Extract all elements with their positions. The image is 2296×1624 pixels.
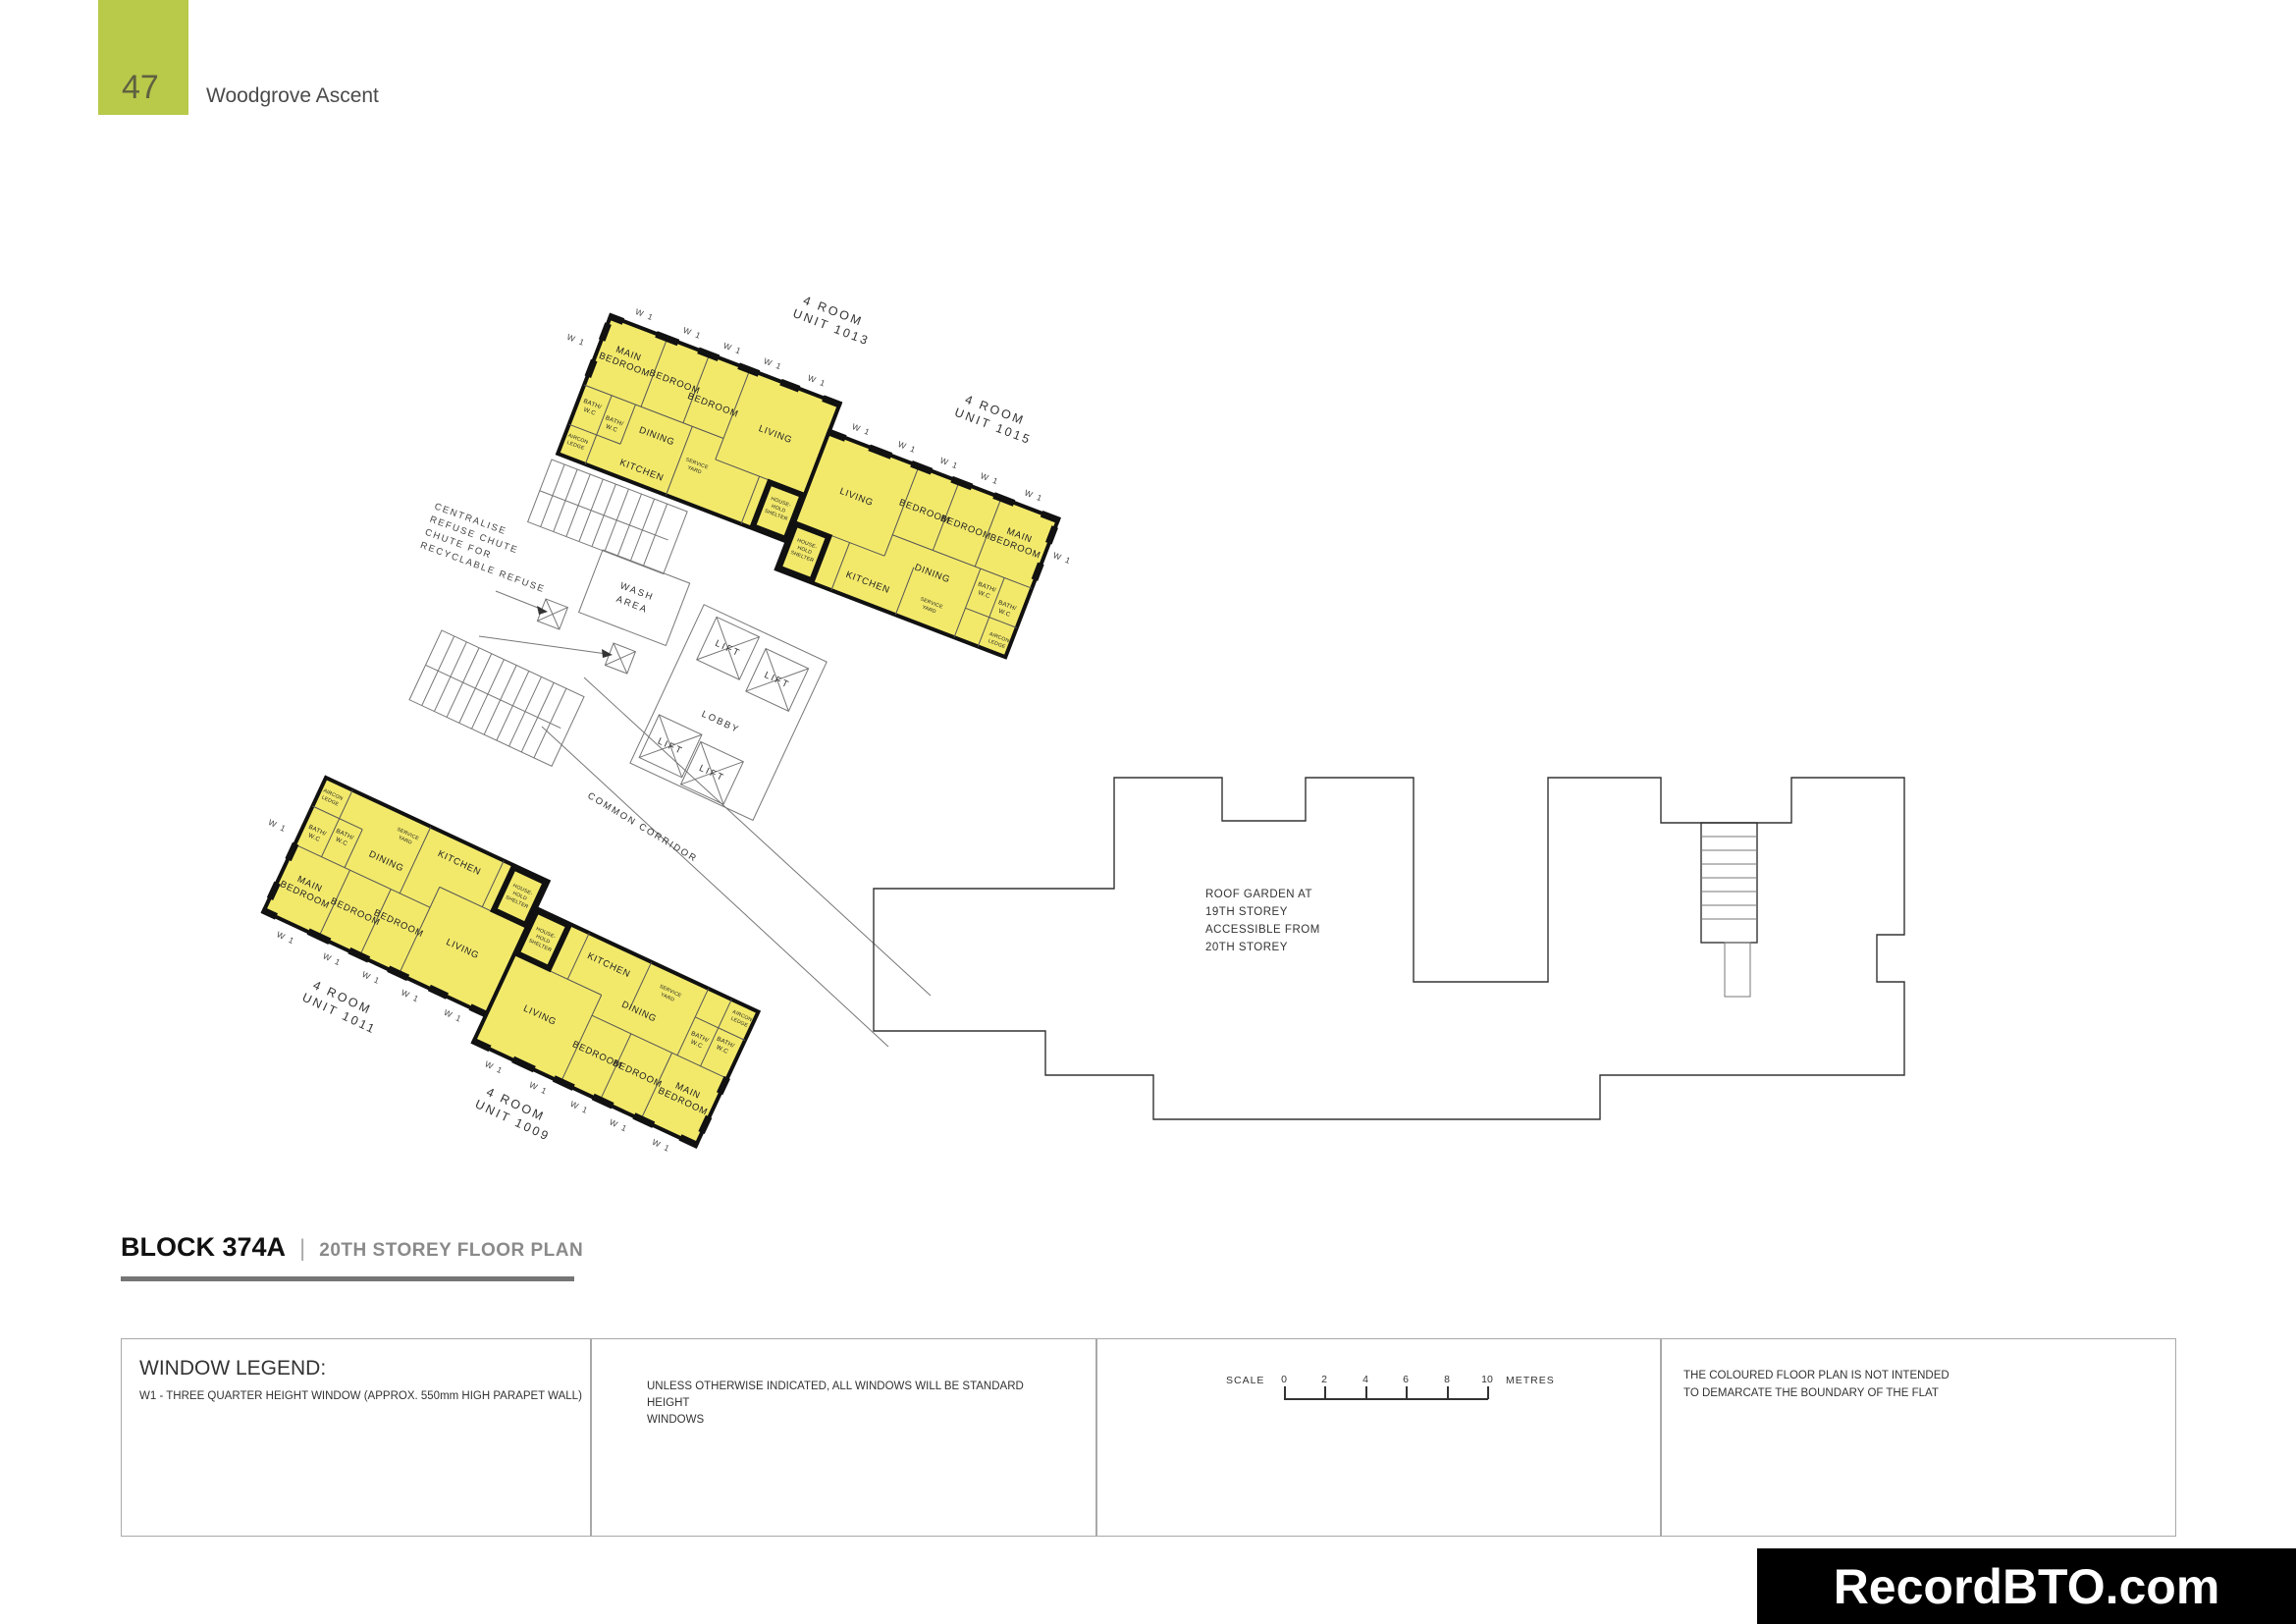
room-label: LEDGE <box>988 638 1007 650</box>
room-label: MAIN <box>1005 526 1034 546</box>
window-label: W 1 <box>568 1099 590 1115</box>
window-label: W 1 <box>896 439 918 455</box>
plan-heading: BLOCK 374A|20TH STOREY FLOOR PLAN <box>121 1232 583 1263</box>
roof-garden: ROOF GARDEN AT 19TH STOREY ACCESSIBLE FR… <box>874 778 1904 1119</box>
room-label: KITCHEN <box>436 848 483 878</box>
window-wall-block <box>950 476 973 490</box>
scale-tick-number: 8 <box>1437 1374 1457 1385</box>
unit-1015-outline <box>776 432 1058 658</box>
window-wall-block <box>717 1076 730 1095</box>
room-label: DINING <box>637 425 675 449</box>
room-label: MAIN <box>295 874 324 894</box>
lift-cross <box>639 715 702 778</box>
room-label: KITCHEN <box>618 458 666 484</box>
lift-box <box>746 649 809 712</box>
room-label: BEDROOM <box>372 907 425 940</box>
room-label: HOLD <box>796 545 812 556</box>
scale-tick <box>1406 1386 1408 1399</box>
scale-tick <box>1324 1386 1326 1399</box>
room-label: AIRCON <box>567 433 589 446</box>
unit-label-1013: UNIT 1013 <box>791 306 872 349</box>
window-wall-block <box>585 359 598 378</box>
room-label: BEDROOM <box>329 895 382 928</box>
room-label: SHELTER <box>764 509 788 523</box>
window-label: W 1 <box>267 817 289 834</box>
lift-box <box>639 715 702 778</box>
page-number-box: 47 <box>98 0 188 115</box>
lift-cross <box>697 617 760 679</box>
room-label: HOUSE- <box>796 537 818 550</box>
chute-outline <box>537 599 567 629</box>
window-wall-block <box>387 965 409 981</box>
wash-area: WASH AREA <box>579 550 690 646</box>
room-label: LEDGE <box>729 1016 749 1029</box>
room-label: HOUSE- <box>511 883 533 897</box>
window-label: W 1 <box>851 421 873 437</box>
window-label: W 1 <box>938 455 960 470</box>
room-label: W.C <box>716 1044 730 1056</box>
household-shelter-wall <box>494 867 546 925</box>
household-shelter-wall <box>778 524 828 581</box>
scale-bar <box>1284 1398 1488 1400</box>
scale-cell: SCALE 0 2 4 6 8 10 METRES <box>1095 1339 1660 1536</box>
window-wall-block <box>307 928 332 944</box>
window-wall-block <box>599 322 612 341</box>
unit-label-1009: UNIT 1009 <box>473 1097 553 1144</box>
room-label: W.C <box>307 832 322 843</box>
unit-label-1013: 4 ROOM <box>801 294 865 329</box>
window-wall-block <box>608 312 624 324</box>
window-label: W 1 <box>400 988 421 1004</box>
room-label: SERVICE <box>659 984 683 1000</box>
unit-1011-partitions <box>264 778 549 1015</box>
window-legend-note: W1 - THREE QUARTER HEIGHT WINDOW (APPROX… <box>139 1390 582 1402</box>
disclaimer-line2: TO DEMARCATE THE BOUNDARY OF THE FLAT <box>1683 1387 1939 1399</box>
window-wall-block <box>470 1037 491 1052</box>
room-label: BEDROOM <box>611 1057 664 1090</box>
window-wall-block <box>469 1003 490 1018</box>
scale-tick-number: 4 <box>1356 1374 1375 1385</box>
room-label: LIVING <box>445 937 481 961</box>
room-label: BATH/ <box>997 599 1017 612</box>
window-wall-block <box>511 1056 536 1072</box>
room-label: YARD <box>398 835 413 846</box>
wash-area-label: AREA <box>614 594 650 616</box>
lift-cross <box>681 741 744 804</box>
window-label: W 1 <box>321 950 343 967</box>
staircase-lower <box>409 630 584 766</box>
wash-area-outline <box>579 550 690 646</box>
common-corridor-label: COMMON CORRIDOR <box>585 790 699 865</box>
room-label: LIVING <box>838 486 876 509</box>
window-label: W 1 <box>1023 487 1044 503</box>
room-label: LEDGE <box>566 440 586 452</box>
lobby-label: LOBBY <box>700 709 741 736</box>
scale-unit: METRES <box>1506 1375 1555 1386</box>
window-wall-block <box>822 395 842 408</box>
stair-landing <box>1725 943 1750 997</box>
room-label: BATH/ <box>690 1030 710 1044</box>
window-wall-block <box>632 1112 655 1128</box>
stair-treads <box>1701 837 1757 919</box>
room-label: SERVICE <box>685 457 710 470</box>
window-label: W 1 <box>651 1137 672 1154</box>
roof-garden-line: ROOF GARDEN AT <box>1205 889 1312 900</box>
lift-2: LIFT <box>746 649 809 712</box>
room-label: BATH/ <box>605 414 624 427</box>
disclaimer-cell: THE COLOURED FLOOR PLAN IS NOT INTENDED … <box>1660 1339 2175 1536</box>
windows-note-line2: WINDOWS <box>647 1414 704 1426</box>
window-wall-block <box>992 492 1015 506</box>
leader-lines <box>479 591 607 654</box>
annotation-line: CHUTE FOR <box>423 527 493 562</box>
windows-note: UNLESS OTHERWISE INDICATED, ALL WINDOWS … <box>647 1379 1069 1429</box>
unit-1011-outline <box>264 778 549 1015</box>
room-label: W.C <box>605 423 618 434</box>
scale-tick <box>1284 1386 1286 1399</box>
room-label: HOUSE- <box>535 926 557 941</box>
room-label: BEDROOM <box>656 1086 709 1118</box>
page-title: Woodgrove Ascent <box>206 84 379 108</box>
window-wall-block <box>267 882 281 900</box>
roof-garden-note: ROOF GARDEN AT 19TH STOREY ACCESSIBLE FR… <box>1205 889 1320 953</box>
recyclable-chute-box <box>605 643 635 674</box>
window-label: W 1 <box>681 325 703 341</box>
unit-label-1015: 4 ROOM <box>963 393 1027 428</box>
watermark-banner: RecordBTO.com <box>1757 1548 2296 1624</box>
window-label: W 1 <box>806 373 828 389</box>
window-wall-block <box>285 842 298 861</box>
room-label: SERVICE <box>396 827 420 842</box>
window-label: W 1 <box>722 341 744 356</box>
window-wall-block <box>697 348 720 361</box>
room-label: LIVING <box>521 1003 558 1028</box>
room-label: W.C <box>977 589 990 600</box>
unit-label-1015: UNIT 1015 <box>953 406 1034 448</box>
window-wall-block <box>1045 525 1058 544</box>
room-label: DINING <box>367 849 405 875</box>
scale-label: SCALE <box>1226 1375 1264 1386</box>
room-label: BEDROOM <box>570 1039 623 1071</box>
room-label: MAIN <box>673 1081 702 1102</box>
room-label: BATH/ <box>582 398 602 410</box>
room-label: BEDROOM <box>897 497 951 526</box>
room-label: HOLD <box>771 504 786 514</box>
unit-1015-partitions <box>776 432 1058 658</box>
lift-label: LIFT <box>763 670 792 691</box>
chute-cross <box>605 643 635 674</box>
window-wall-block <box>826 428 846 442</box>
annotation-line: RECYCLABLE REFUSE <box>419 540 547 595</box>
window-label: W 1 <box>443 1007 464 1024</box>
lift-label: LIFT <box>714 638 743 660</box>
unit-label-1011: UNIT 1011 <box>300 991 379 1037</box>
unit-1015: LIVING BEDROOM BEDROOM MAIN BEDROOM DINI… <box>774 413 1091 667</box>
stair-treads <box>409 630 577 763</box>
window-wall-block <box>1041 511 1061 524</box>
stair-outline <box>409 630 584 766</box>
room-label: SERVICE <box>920 596 944 610</box>
roof-garden-line: 19TH STOREY <box>1205 906 1288 918</box>
window-label: W 1 <box>979 470 1000 486</box>
stair-treads <box>528 460 680 571</box>
unit-1013-outline <box>558 316 839 542</box>
brochure-page: 47 Woodgrove Ascent MAIN BEDROOM BEDROOM <box>0 0 2296 1624</box>
room-label: YARD <box>660 992 675 1003</box>
room-label: W.C <box>583 406 597 417</box>
heading-underline <box>121 1276 574 1281</box>
window-wall-block <box>428 985 449 1000</box>
lift-label: LIFT <box>656 735 685 757</box>
window-wall-block <box>261 906 278 919</box>
room-label: BEDROOM <box>686 391 740 420</box>
chute-outline <box>605 643 635 674</box>
scale-tick <box>1447 1386 1449 1399</box>
room-label: SHELTER <box>528 938 553 953</box>
annotation-line: REFUSE CHUTE <box>428 514 520 557</box>
lift-4: LIFT <box>681 741 744 804</box>
lift-box <box>697 617 760 679</box>
unit-label-1009: 4 ROOM <box>484 1085 547 1124</box>
unit-1009-outline <box>474 908 759 1146</box>
room-label: LEDGE <box>321 794 341 807</box>
room-label: HOUSE- <box>770 496 791 509</box>
lift-1: LIFT <box>697 617 760 679</box>
room-label: DINING <box>619 1000 658 1025</box>
scale-tick-number: 0 <box>1274 1374 1294 1385</box>
room-label: W.C <box>335 836 349 847</box>
window-label: W 1 <box>483 1058 505 1075</box>
window-label: W 1 <box>763 355 784 371</box>
lift-cross <box>746 649 809 712</box>
roof-garden-stair <box>1701 823 1757 997</box>
window-wall-block <box>1032 563 1044 581</box>
window-label: W 1 <box>275 929 296 946</box>
wash-area-label: WASH <box>618 580 656 603</box>
window-wall-block <box>868 445 892 460</box>
window-label: W 1 <box>1051 550 1073 566</box>
unit-1009-partitions <box>474 908 759 1146</box>
stair-outline <box>1701 823 1757 943</box>
lift-label: LIFT <box>697 763 726 785</box>
room-label: BATH/ <box>977 581 996 594</box>
roof-garden-line: ACCESSIBLE FROM <box>1205 924 1320 936</box>
disclaimer-line1: THE COLOURED FLOOR PLAN IS NOT INTENDED <box>1683 1370 1949 1381</box>
chute-cross <box>537 599 567 629</box>
refuse-chute-annotation: CENTRALISE REFUSE CHUTE CHUTE FOR RECYCL… <box>419 501 613 658</box>
unit-1013: MAIN BEDROOM BEDROOM BEDROOM LIVING DINI… <box>527 287 848 542</box>
room-label: BEDROOM <box>648 367 702 397</box>
room-label: AIRCON <box>988 631 1010 644</box>
window-legend-cell: WINDOW LEGEND: W1 - THREE QUARTER HEIGHT… <box>122 1339 590 1536</box>
windows-note-cell: UNLESS OTHERWISE INDICATED, ALL WINDOWS … <box>590 1339 1095 1536</box>
room-label: BEDROOM <box>988 532 1042 562</box>
watermark-text: RecordBTO.com <box>1834 1558 2220 1615</box>
scale-tick <box>1365 1386 1367 1399</box>
room-label: YARD <box>921 605 936 616</box>
lift-lobby: LIFT LIFT LOBBY LIFT LIFT <box>630 605 827 821</box>
scale-tick <box>1487 1386 1489 1399</box>
roof-garden-outline <box>874 778 1904 1119</box>
room-label: HOLD <box>511 891 527 902</box>
staircase-upper <box>528 460 688 574</box>
room-label: BEDROOM <box>598 351 652 380</box>
window-wall-block <box>910 460 933 474</box>
central-core: WASH AREA L <box>409 460 931 1047</box>
room-label: SHELTER <box>505 894 529 910</box>
window-wall-block <box>655 331 679 346</box>
leader-arrow <box>602 649 613 658</box>
window-wall-block <box>553 1075 575 1091</box>
household-shelter-wall <box>517 911 569 969</box>
annotation-line: CENTRALISE <box>433 501 508 537</box>
disclaimer: THE COLOURED FLOOR PLAN IS NOT INTENDED … <box>1683 1367 1949 1402</box>
window-wall-block <box>592 1094 614 1110</box>
storey-plan-title: 20TH STOREY FLOOR PLAN <box>319 1240 583 1261</box>
room-label: BEDROOM <box>938 514 992 543</box>
heading-separator: | <box>299 1235 305 1262</box>
room-label: YARD <box>686 465 702 476</box>
window-wall-block <box>679 1134 700 1149</box>
page-number: 47 <box>122 69 159 107</box>
lift-box <box>681 741 744 804</box>
household-shelter-wall <box>753 482 803 539</box>
scale-tick-number: 10 <box>1477 1374 1497 1385</box>
window-label: W 1 <box>634 306 656 322</box>
common-corridor-lines <box>542 677 931 1047</box>
unit-label-1011: 4 ROOM <box>311 978 374 1017</box>
refuse-chute-box <box>537 599 567 629</box>
window-label: W 1 <box>360 969 382 986</box>
scale-tick-number: 2 <box>1314 1374 1334 1385</box>
room-label: BEDROOM <box>278 879 331 911</box>
room-label: DINING <box>913 562 951 585</box>
room-label: KITCHEN <box>844 569 891 596</box>
unit-1009: LIVING BEDROOM BEDROOM MAIN BEDROOM DINI… <box>463 907 761 1164</box>
upper-wing: MAIN BEDROOM BEDROOM BEDROOM LIVING DINI… <box>516 219 1127 667</box>
unit-1011: MAIN BEDROOM BEDROOM BEDROOM LIVING DINI… <box>226 764 551 1034</box>
window-wall-block <box>347 947 370 963</box>
lobby-outline <box>630 605 827 821</box>
lift-3: LIFT <box>639 715 702 778</box>
block-title: BLOCK 374A <box>121 1232 286 1262</box>
window-wall-block <box>698 1115 712 1134</box>
window-wall-block <box>779 379 800 393</box>
room-label: W.C <box>997 608 1011 619</box>
room-label: LIVING <box>757 423 794 446</box>
room-label: W.C <box>689 1039 704 1051</box>
room-label: SHELTER <box>789 550 814 565</box>
roof-garden-line: 20TH STOREY <box>1205 942 1288 953</box>
room-label: AIRCON <box>731 1009 753 1023</box>
window-legend-title: WINDOW LEGEND: <box>139 1357 326 1380</box>
room-label: BATH/ <box>335 828 354 841</box>
scale-tick-number: 6 <box>1396 1374 1415 1385</box>
unit-1013-partitions <box>558 316 839 542</box>
room-label: BATH/ <box>716 1036 735 1050</box>
window-wall-block <box>737 362 760 376</box>
window-label: W 1 <box>608 1117 629 1134</box>
room-label: KITCHEN <box>585 950 632 980</box>
legend-table: WINDOW LEGEND: W1 - THREE QUARTER HEIGHT… <box>121 1338 2176 1537</box>
room-label: BATH/ <box>307 824 327 838</box>
room-label: AIRCON <box>322 787 344 801</box>
window-label: W 1 <box>565 332 587 348</box>
stair-outline <box>528 460 688 574</box>
room-label: MAIN <box>614 345 643 364</box>
leader-arrow <box>537 606 548 615</box>
windows-note-line1: UNLESS OTHERWISE INDICATED, ALL WINDOWS … <box>647 1380 1024 1409</box>
lower-wing: MAIN BEDROOM BEDROOM BEDROOM LIVING DINI… <box>195 764 774 1203</box>
room-label: HOLD <box>535 934 551 946</box>
window-label: W 1 <box>528 1080 550 1097</box>
